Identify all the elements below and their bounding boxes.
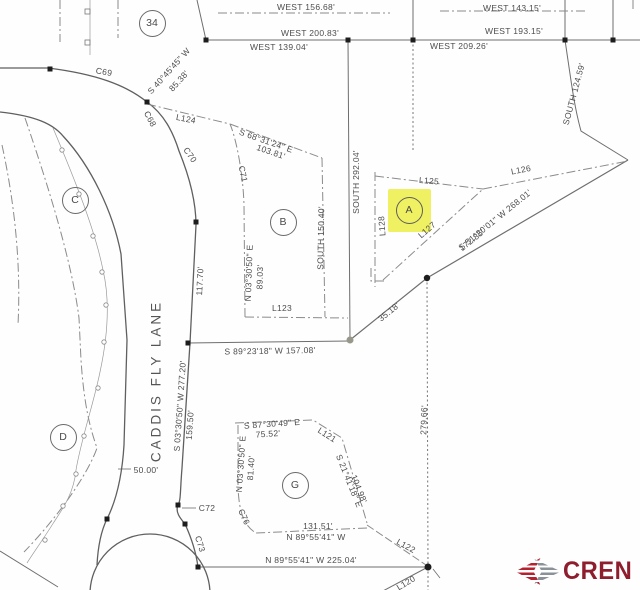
- label-bearing-n89: N 89°55'41" W: [286, 533, 345, 542]
- label-bearing-s89-157: S 89°23'18" W 157.08': [224, 346, 315, 356]
- cren-chevron-icon: [515, 558, 561, 586]
- plat-map-image: WEST 156.68' WEST 143.15' WEST 200.83' W…: [0, 0, 640, 590]
- label-bearing-n89-225: N 89°55'41" W 225.04': [265, 556, 357, 565]
- label-dist-159-50: 159.50': [185, 410, 196, 440]
- label-curve-c72: C72: [199, 504, 216, 513]
- label-south-150-40: SOUTH 150.40': [316, 206, 326, 270]
- lot-marker-c: C: [62, 187, 89, 214]
- lot-marker-a-highlighted: A: [396, 197, 423, 224]
- lot-c-label: C: [71, 195, 79, 206]
- lot-d-label: D: [59, 432, 67, 443]
- lot-marker-g: G: [282, 472, 309, 499]
- label-dist-89-03: 89.03': [255, 265, 264, 290]
- label-line-l125: L125: [419, 176, 440, 186]
- lot-marker-34: 34: [139, 10, 166, 37]
- label-bearing-n03-89: N 03°30'50" E: [244, 244, 254, 301]
- label-line-l123: L123: [272, 304, 292, 313]
- label-dist-81-40: 81.40': [246, 455, 256, 480]
- label-west-156-68: WEST 156.68': [277, 3, 335, 12]
- label-curve-c71: C71: [237, 165, 249, 183]
- cren-logo: CREN: [515, 557, 636, 586]
- lot-34-label: 34: [146, 18, 158, 29]
- label-west-143-15: WEST 143.15': [483, 4, 541, 13]
- label-west-193-15: WEST 193.15': [485, 27, 543, 36]
- label-line-l128: L128: [377, 216, 387, 237]
- cren-logo-text: CREN: [563, 557, 632, 586]
- label-dist-117-70: 117.70': [195, 266, 205, 295]
- label-west-209-26: WEST 209.26': [430, 42, 488, 51]
- label-west-139-04: WEST 139.04': [250, 43, 308, 52]
- label-dist-75-52: 75.52': [255, 429, 280, 439]
- lot-a-label: A: [405, 205, 412, 216]
- label-west-200-83: WEST 200.83': [281, 29, 339, 38]
- label-dist-50-00: 50.00': [134, 466, 159, 475]
- label-dist-131-51: 131.51': [303, 522, 333, 531]
- lot-b-label: B: [279, 217, 286, 228]
- plat-linework: [0, 0, 640, 590]
- label-dist-279-66: 279.66': [419, 405, 429, 435]
- street-name-label: CADDIS FLY LANE: [149, 300, 163, 462]
- lot-marker-d: D: [50, 424, 77, 451]
- lot-g-label: G: [291, 480, 299, 491]
- label-south-292-04: SOUTH 292.04': [352, 150, 361, 214]
- lot-marker-b: B: [270, 209, 297, 236]
